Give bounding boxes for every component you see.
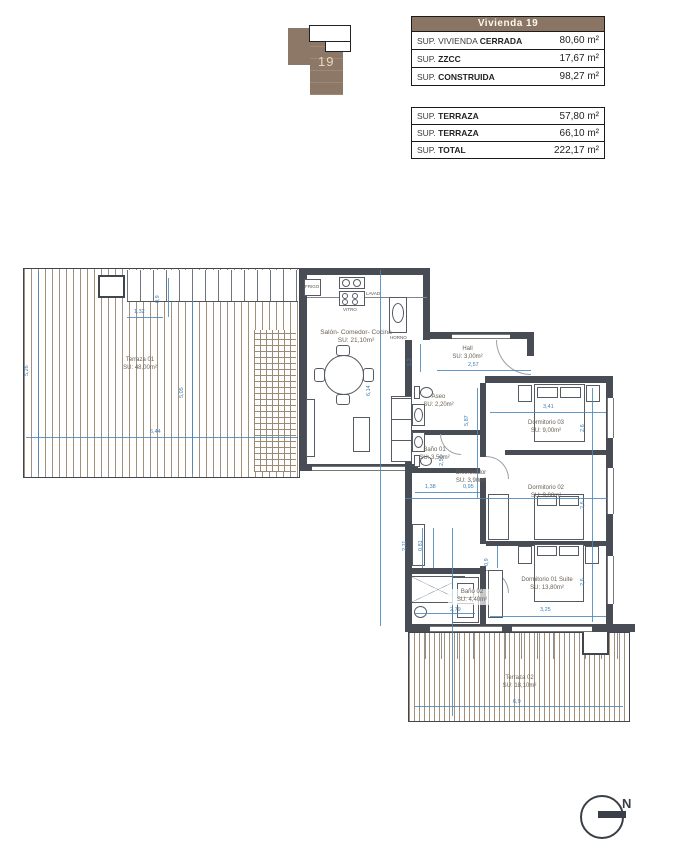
dimension-line — [497, 546, 498, 568]
dimension-label: 2,6 — [580, 501, 586, 509]
chair — [336, 345, 350, 356]
sink-bowl — [353, 279, 361, 287]
room-label-bano-02: Baño 02 SU: 4,40m² — [448, 589, 496, 605]
room-label-hall: Hall SU: 3,00m² — [440, 346, 495, 362]
dimension-line — [433, 528, 434, 568]
dimension-line — [437, 370, 531, 371]
chair — [314, 368, 325, 382]
room-label-bano-01: Baño 01 SU: 3,50m² — [412, 447, 457, 463]
planter — [98, 275, 125, 298]
toilet-bowl — [414, 606, 427, 618]
dimension-label: 0,81 — [418, 540, 424, 551]
room-name: Dormitorio 01 Suite — [508, 577, 586, 585]
room-label-salon: Salón- Comedor- Cocina SU: 21,10m² — [300, 329, 412, 346]
wall-segment — [505, 450, 612, 455]
dimension-line — [415, 706, 623, 707]
dimension-line — [192, 300, 193, 474]
room-name: Hall — [440, 346, 495, 354]
window — [607, 556, 614, 604]
dimension-line — [490, 412, 606, 413]
window — [607, 398, 614, 438]
floor-plan: FRIGO VITRO LAVAD. HORNO — [0, 0, 677, 842]
room-name: Dormitorio 02 — [515, 485, 577, 493]
sink-bowl — [342, 279, 350, 287]
room-label-dormitorio-01-suite: Dormitorio 01 Suite SU: 13,80m² — [508, 577, 586, 593]
laundry-drum — [392, 303, 404, 323]
dimension-label: 6,44 — [150, 429, 161, 435]
dimension-line — [168, 278, 169, 317]
wall-segment — [480, 383, 486, 457]
dimension-line — [490, 616, 606, 617]
burner — [352, 299, 358, 305]
dimension-label: 1,2 — [407, 358, 413, 366]
coffee-table — [353, 417, 370, 452]
room-label-terraza-02: Terraza 02 SU: 18,10m² — [487, 675, 552, 691]
sliding-door — [430, 626, 502, 632]
chair — [336, 394, 350, 405]
appliance-label: FRIGO — [305, 284, 319, 289]
dimension-label: 5,05 — [179, 387, 185, 398]
dimension-label: 3,41 — [543, 404, 554, 410]
room-name: Salón- Comedor- Cocina — [300, 329, 412, 337]
dimension-label: 2,11 — [402, 541, 408, 551]
dimension-label: 6,9 — [513, 699, 521, 705]
room-area: SU: 48,00m² — [110, 365, 170, 373]
wall-segment — [300, 268, 430, 275]
dimension-label: 3,25 — [540, 607, 551, 613]
dimension-line — [592, 388, 593, 622]
dimension-label: 2,6 — [580, 424, 586, 432]
pillow — [537, 387, 558, 398]
dimension-line — [452, 528, 453, 716]
dimension-label: 6,14 — [366, 385, 372, 396]
window — [607, 468, 614, 514]
floor-plan-sheet: 19 Vivienda 19 SUP. VIVIENDA CERRADA 80,… — [0, 0, 677, 842]
room-area: SU: 4,40m² — [448, 597, 496, 605]
dimension-label: 5,87 — [464, 415, 470, 426]
dimension-line — [405, 498, 608, 499]
room-label-aseo: Aseo SU: 2,20m² — [416, 394, 461, 410]
nightstand — [586, 385, 600, 402]
burner — [342, 299, 348, 305]
room-area: SU: 3,00m² — [440, 354, 495, 362]
room-area: SU: 18,10m² — [487, 683, 552, 691]
dining-table — [324, 355, 364, 395]
nightstand — [518, 546, 532, 564]
wall-segment — [480, 478, 486, 544]
chair — [363, 368, 374, 382]
window — [312, 466, 410, 471]
room-name: Terraza 01 — [110, 357, 170, 365]
appliance-label: VITRO — [343, 307, 357, 312]
room-name: Dormitorio 03 — [515, 420, 577, 428]
wall-segment — [485, 376, 613, 383]
dimension-label: 0,9 — [155, 295, 161, 303]
dimension-line — [415, 492, 480, 493]
room-area: SU: 9,00m² — [515, 428, 577, 436]
wall-segment — [405, 568, 482, 574]
room-name: Baño 02 — [448, 589, 496, 597]
north-label: N — [622, 796, 631, 811]
room-label-terraza-01: Terraza 01 SU: 48,00m² — [110, 357, 170, 373]
room-name: Distribuidor — [445, 470, 497, 478]
dimension-label: 2,57 — [468, 362, 479, 368]
dimension-line — [415, 613, 475, 614]
room-name: Baño 01 — [412, 447, 457, 455]
dimension-line — [420, 344, 421, 372]
room-area: SU: 3,50m² — [412, 455, 457, 463]
room-label-dormitorio-03: Dormitorio 03 SU: 9,00m² — [515, 420, 577, 436]
room-area: SU: 2,20m² — [416, 402, 461, 410]
nightstand — [518, 385, 532, 402]
pillow — [537, 546, 557, 556]
dimension-label: 1,32 — [134, 309, 145, 315]
room-label-distribuidor: Distribuidor SU: 3,90m² — [445, 470, 497, 486]
room-name: Terraza 02 — [487, 675, 552, 683]
dimension-label: 2,79 — [450, 607, 461, 613]
sliding-door — [512, 626, 592, 632]
room-label-dormitorio-02: Dormitorio 02 SU: 9,00m² — [515, 485, 577, 501]
window — [452, 334, 510, 339]
dimension-line — [380, 270, 381, 626]
room-area: SU: 21,10m² — [300, 337, 412, 345]
room-area: SU: 9,00m² — [515, 493, 577, 501]
pillow — [560, 387, 581, 398]
dimension-line — [38, 272, 39, 474]
compass-needle-icon — [598, 811, 626, 818]
terrace-01-pergola — [127, 270, 298, 302]
dimension-line — [26, 437, 298, 438]
room-area: SU: 13,80m² — [508, 585, 586, 593]
terrace-01-trellis — [254, 330, 296, 472]
dimension-line — [127, 317, 163, 318]
pillow — [559, 546, 579, 556]
tv-unit — [306, 399, 315, 457]
room-area: SU: 3,90m² — [445, 478, 497, 486]
sofa — [391, 396, 412, 462]
dimension-label: 5,26 — [24, 365, 30, 376]
dimension-label: 1,38 — [425, 484, 436, 490]
dimension-label: 0,9 — [484, 558, 490, 566]
wardrobe — [488, 494, 509, 540]
sink-bowl — [414, 408, 423, 422]
room-name: Aseo — [416, 394, 461, 402]
